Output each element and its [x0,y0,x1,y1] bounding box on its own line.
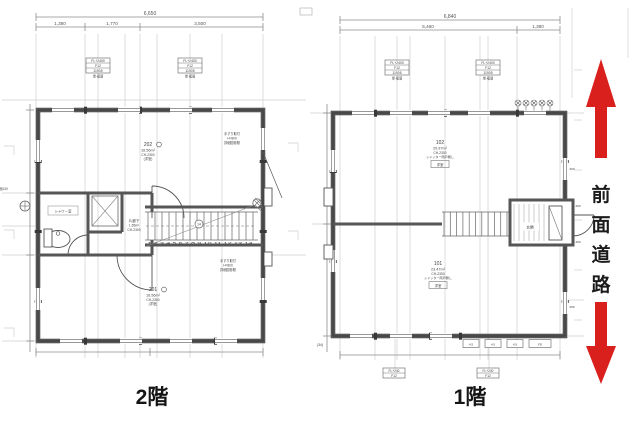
svg-text:シャッター雨戸無し: シャッター雨戸無し [426,154,454,159]
floor2-window-tag-2: FL+2400 F12 11905 単·複層 [178,58,202,79]
tag-row: F12 [394,66,400,70]
svg-text:102: 102 [436,140,445,146]
floor2-dimension-lines: 6,650 1,380 1,770 3,500 [26,11,263,356]
tag-row: F12 [485,374,491,378]
floor1-dim-seg2: 1,380 [532,24,544,29]
pipe-shaft [264,252,272,266]
svg-text:洋室: 洋室 [437,162,444,167]
washer-space [92,196,118,226]
road-label-char-3: 道 [591,243,610,266]
front-road-annotation: 前 面 道 路 [586,59,616,384]
tag-row: 11905 [483,71,492,75]
floor1-dim-seg1: 5,460 [422,24,434,29]
foundation-vent-boxes: 4.5 4.5 4.5 FD [463,340,551,348]
floor2-caption: 2階 [136,386,169,409]
room-101-label: 101 23.47m² CH-2300 シャッター雨戸無し 洋室 [424,261,452,289]
stair-count-bubble: 14 [197,223,201,227]
road-label-char-4: 路 [591,273,611,296]
corridor-ch: CH-2300 [127,228,140,232]
shower-room-label: シャワー室 [55,209,73,214]
room-201-label: 201 16.56m² CH-2300 (洋室) [146,287,166,306]
svg-text:201: 201 [149,287,158,293]
road-label-char-2: 面 [591,215,610,236]
svg-text:H=800: H=800 [227,137,237,141]
room-102-label: 102 20.97m² CH-2300 シャッター雨戸無し 洋室 [426,140,454,168]
tag-row: F12 [485,66,491,70]
stair-tread-numbers: 1 2 3 4 5 6 7 8 9 10 11 12 13 14 [148,241,254,245]
pipe-shaft [324,245,333,259]
floor1-window-tag-2: FL+2400 F12 11905 単·複層 [476,60,500,81]
floor1-window-tag-1: FL+2400 F12 11905 単·複層 [385,60,409,81]
svg-text:手すり取付: 手すり取付 [220,258,237,263]
floor2-dim-seg3: 3,500 [194,21,206,26]
tag-sub: 単·複層 [392,76,403,81]
floor2-window-tag-1: FL+2400 F12 11905 単·複層 [86,58,110,79]
floor2-door-swings [68,152,282,290]
svg-text:(洋室): (洋室) [144,156,153,161]
floor2-dim-seg1: 1,380 [54,21,66,26]
tag-row: FL+2400 [183,59,197,63]
tag-row: 11905 [93,69,102,73]
svg-text:300: 300 [569,167,574,171]
tag-sub: 単·複層 [93,74,104,79]
svg-text:詳細図参照: 詳細図参照 [224,140,241,145]
svg-text:202: 202 [144,142,153,148]
tag-row: FL+240 [389,369,400,373]
grid-reference: (34) [317,343,323,347]
benchmark-symbol: 踏面130 [0,186,30,211]
pipe-shaft [324,188,333,206]
entry-stair-box: 玄関 [510,200,594,245]
svg-text:4.5: 4.5 [469,342,474,346]
svg-text:4.5: 4.5 [513,342,518,346]
tag-row: F12 [187,64,193,68]
road-label-char-1: 前 [591,183,610,206]
room-202-label: 202 16.56m² CH-2300 (洋室) [141,142,161,161]
tag-sub: 単·複層 [185,74,196,79]
svg-text:4.5: 4.5 [491,342,496,346]
svg-text:洋室: 洋室 [435,283,442,288]
floor2-dim-seg2: 1,770 [106,21,118,26]
floor1-bottom-tag-2: FL+240 F12 [477,368,499,378]
floor2-side-note-a: 手すり取付 H=800 詳細図参照 [224,131,241,145]
road-arrow-down-icon [586,302,616,384]
floor1-caption: 1階 [454,386,487,409]
floor2-side-note-b: 手すり取付 H=800 詳細図参照 [220,258,237,272]
floor1-bottom-tag-1: FL+240 F12 [383,368,405,378]
entry-label: 玄関 [526,225,534,230]
svg-text:(洋室): (洋室) [149,301,158,306]
tag-row: F12 [95,64,101,68]
toilet-fixture [44,229,70,248]
floor1-plan: 玄関 102 20.97m² CH-2300 シャッター雨戸無し 洋室 101 … [317,100,594,348]
tag-sub: 単·複層 [483,76,494,81]
svg-text:101: 101 [434,261,443,267]
tag-row: FL+2400 [91,59,105,63]
floor2-plan: シャワー室 片廊下 1.65m² CH-2300 14 1 2 3 4 5 6 … [0,107,282,345]
floor1-dim-total: 6,840 [444,14,457,20]
svg-text:300: 300 [575,240,580,244]
corridor-name: 片廊下 [129,218,140,223]
floor-plan-sheet: 6,650 1,380 1,770 3,500 FL+2400 F12 1190… [0,0,635,445]
svg-text:H=800: H=800 [223,264,233,268]
svg-text:手すり取付: 手すり取付 [224,131,241,136]
tag-row: 11905 [392,71,401,75]
floor2-stairs: 14 1 2 3 4 5 6 7 8 9 10 11 12 13 14 [145,198,262,246]
floor2-dim-total: 6,650 [144,11,157,17]
floor2-interior-walls [38,193,263,255]
svg-text:詳細図参照: 詳細図参照 [220,267,237,272]
tag-row: FL+2400 [390,61,404,65]
floor1-dimension-lines: 6,840 5,460 1,380 [323,14,560,359]
corridor-area: 1.65m² [129,224,140,228]
floor-plan-drawing: 6,650 1,380 1,770 3,500 FL+2400 F12 1190… [0,0,635,445]
svg-text:300: 300 [575,204,580,208]
vent-cap-row [515,100,553,111]
floor1-stairs [442,212,510,236]
svg-text:300: 300 [569,305,574,309]
tag-row: 11905 [185,69,194,73]
pipe-shaft [264,188,272,206]
svg-text:シャッター雨戸無し: シャッター雨戸無し [424,275,452,280]
road-arrow-up-icon [586,59,616,158]
benchmark-note: 踏面130 [0,186,8,191]
tag-row: F12 [391,374,397,378]
tag-row: FL+240 [483,369,494,373]
tag-row: FL+2400 [481,61,495,65]
